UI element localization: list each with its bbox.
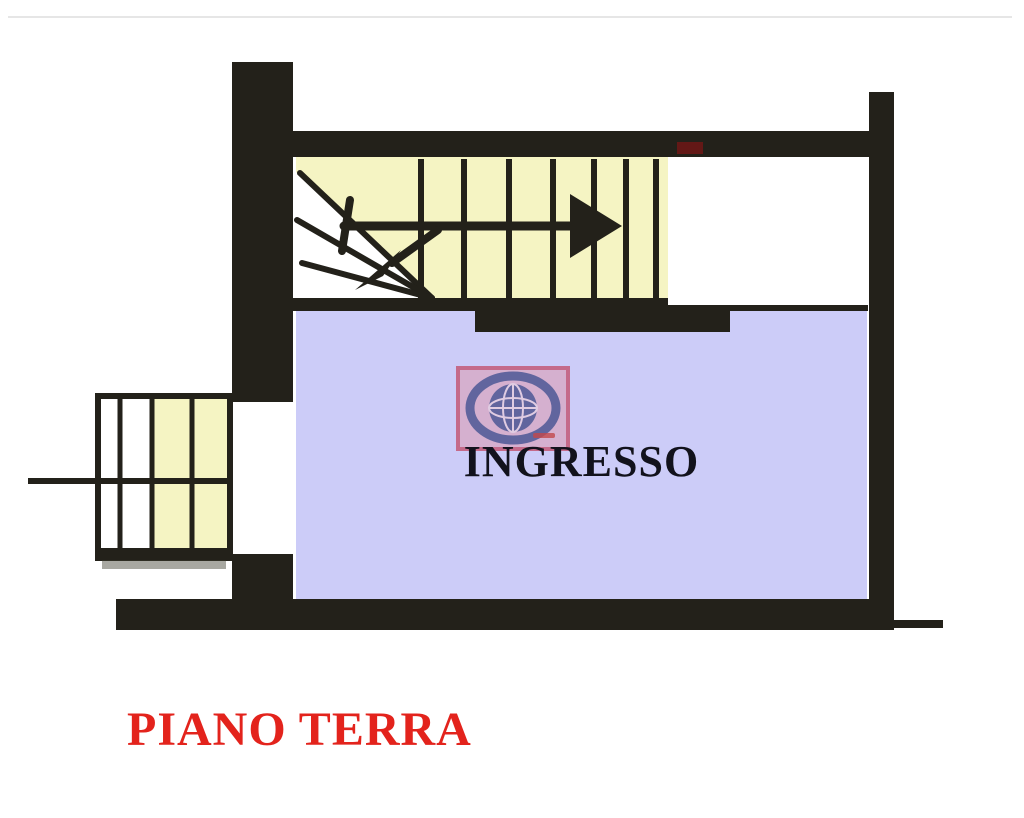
red-mark (677, 142, 703, 154)
floor-plan-canvas: INGRESSO PIANO TERRA (0, 0, 1024, 818)
room-label-ingresso: INGRESSO (296, 436, 867, 487)
scan-border-line (8, 16, 1012, 18)
floor-title: PIANO TERRA (127, 702, 472, 757)
main-staircase (296, 157, 668, 302)
floor-plan-drawing (0, 0, 1024, 818)
wall-left-lower (232, 554, 293, 600)
secondary-stair-smudge (102, 560, 226, 569)
wall-top (293, 131, 872, 157)
wall-left-column (232, 62, 293, 402)
stairs-white-cover (668, 157, 869, 305)
wall-bottom (116, 599, 894, 630)
wall-bottom-extension (894, 620, 943, 628)
wall-right (869, 92, 894, 630)
secondary-staircase (28, 396, 233, 569)
secondary-stair-bottom-edge (95, 548, 233, 561)
